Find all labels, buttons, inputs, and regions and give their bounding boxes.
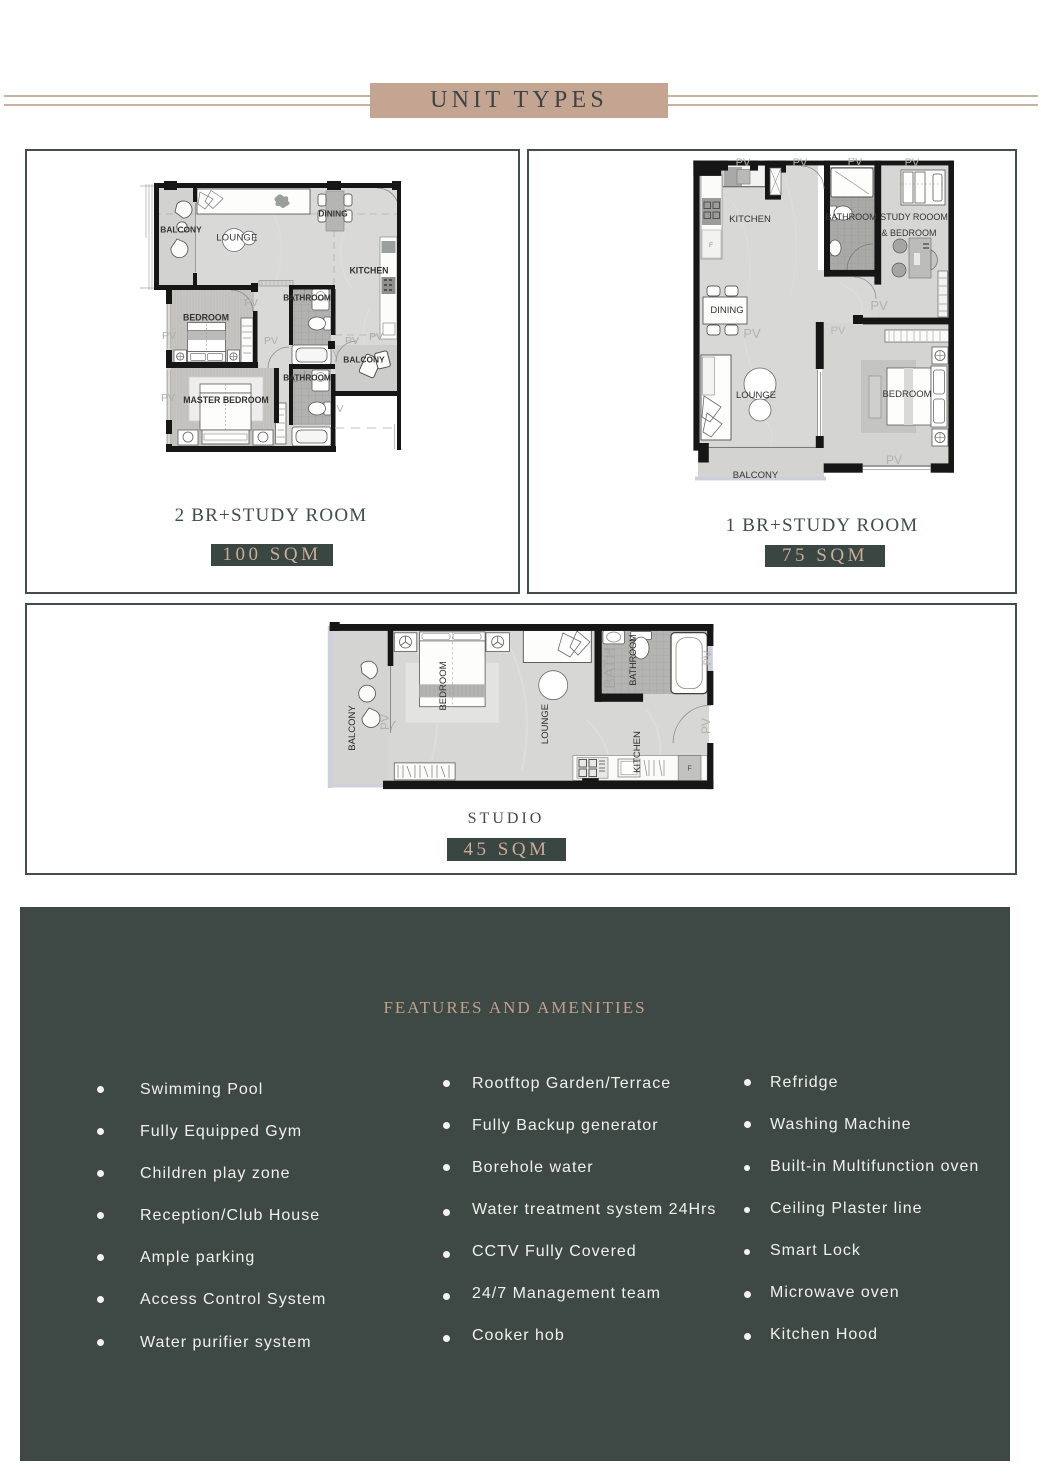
svg-text:PV: PV bbox=[699, 718, 713, 734]
svg-text:BEDROOM: BEDROOM bbox=[438, 661, 449, 710]
svg-text:BATH: BATH bbox=[602, 647, 619, 688]
svg-text:BATHROOM: BATHROOM bbox=[283, 374, 331, 383]
svg-text:KITCHEN: KITCHEN bbox=[729, 214, 771, 225]
svg-text:PV: PV bbox=[848, 158, 863, 168]
svg-text:LOUNGE: LOUNGE bbox=[540, 704, 551, 744]
svg-text:LOUNGE: LOUNGE bbox=[736, 390, 776, 401]
svg-text:BATHROOM: BATHROOM bbox=[825, 212, 876, 222]
svg-text:BALCONY: BALCONY bbox=[343, 355, 385, 365]
svg-text:STUDY ROOOM: STUDY ROOOM bbox=[880, 212, 948, 222]
svg-text:PV: PV bbox=[162, 330, 176, 342]
svg-text:F: F bbox=[687, 766, 691, 773]
svg-text:PV: PV bbox=[886, 453, 902, 467]
svg-text:BEDROOM: BEDROOM bbox=[183, 313, 229, 323]
svg-text:& BEDROOM: & BEDROOM bbox=[881, 228, 936, 238]
svg-text:MASTER BEDROOM: MASTER BEDROOM bbox=[183, 395, 269, 405]
svg-text:BATHROOM: BATHROOM bbox=[283, 294, 331, 303]
svg-text:PV: PV bbox=[870, 298, 888, 313]
svg-text:PV: PV bbox=[161, 392, 175, 404]
svg-text:PV: PV bbox=[378, 714, 392, 730]
svg-text:PV: PV bbox=[743, 326, 761, 341]
svg-text:PV: PV bbox=[369, 331, 383, 343]
svg-text:BALCONY: BALCONY bbox=[160, 225, 202, 235]
svg-text:LOUNGE: LOUNGE bbox=[216, 232, 257, 243]
svg-text:V: V bbox=[336, 403, 343, 415]
svg-text:KITCHEN: KITCHEN bbox=[632, 731, 643, 773]
svg-text:PV: PV bbox=[793, 158, 808, 169]
svg-text:PV: PV bbox=[264, 335, 278, 347]
svg-text:BALCONY: BALCONY bbox=[733, 470, 779, 481]
svg-text:F: F bbox=[709, 242, 713, 249]
svg-text:DINING: DINING bbox=[318, 209, 347, 219]
svg-text:PV: PV bbox=[345, 335, 359, 347]
svg-text:PV: PV bbox=[736, 158, 751, 169]
svg-text:KITCHEN: KITCHEN bbox=[349, 266, 388, 276]
svg-text:DINING: DINING bbox=[710, 305, 743, 316]
svg-text:PV: PV bbox=[702, 650, 714, 665]
svg-text:PV: PV bbox=[905, 158, 920, 169]
svg-text:V: V bbox=[332, 348, 339, 360]
svg-text:PV: PV bbox=[831, 325, 846, 337]
svg-text:BATHROOM: BATHROOM bbox=[628, 634, 638, 685]
svg-text:PV: PV bbox=[244, 297, 258, 309]
svg-text:BEDROOM: BEDROOM bbox=[882, 389, 931, 400]
svg-text:BALCONY: BALCONY bbox=[347, 705, 358, 751]
